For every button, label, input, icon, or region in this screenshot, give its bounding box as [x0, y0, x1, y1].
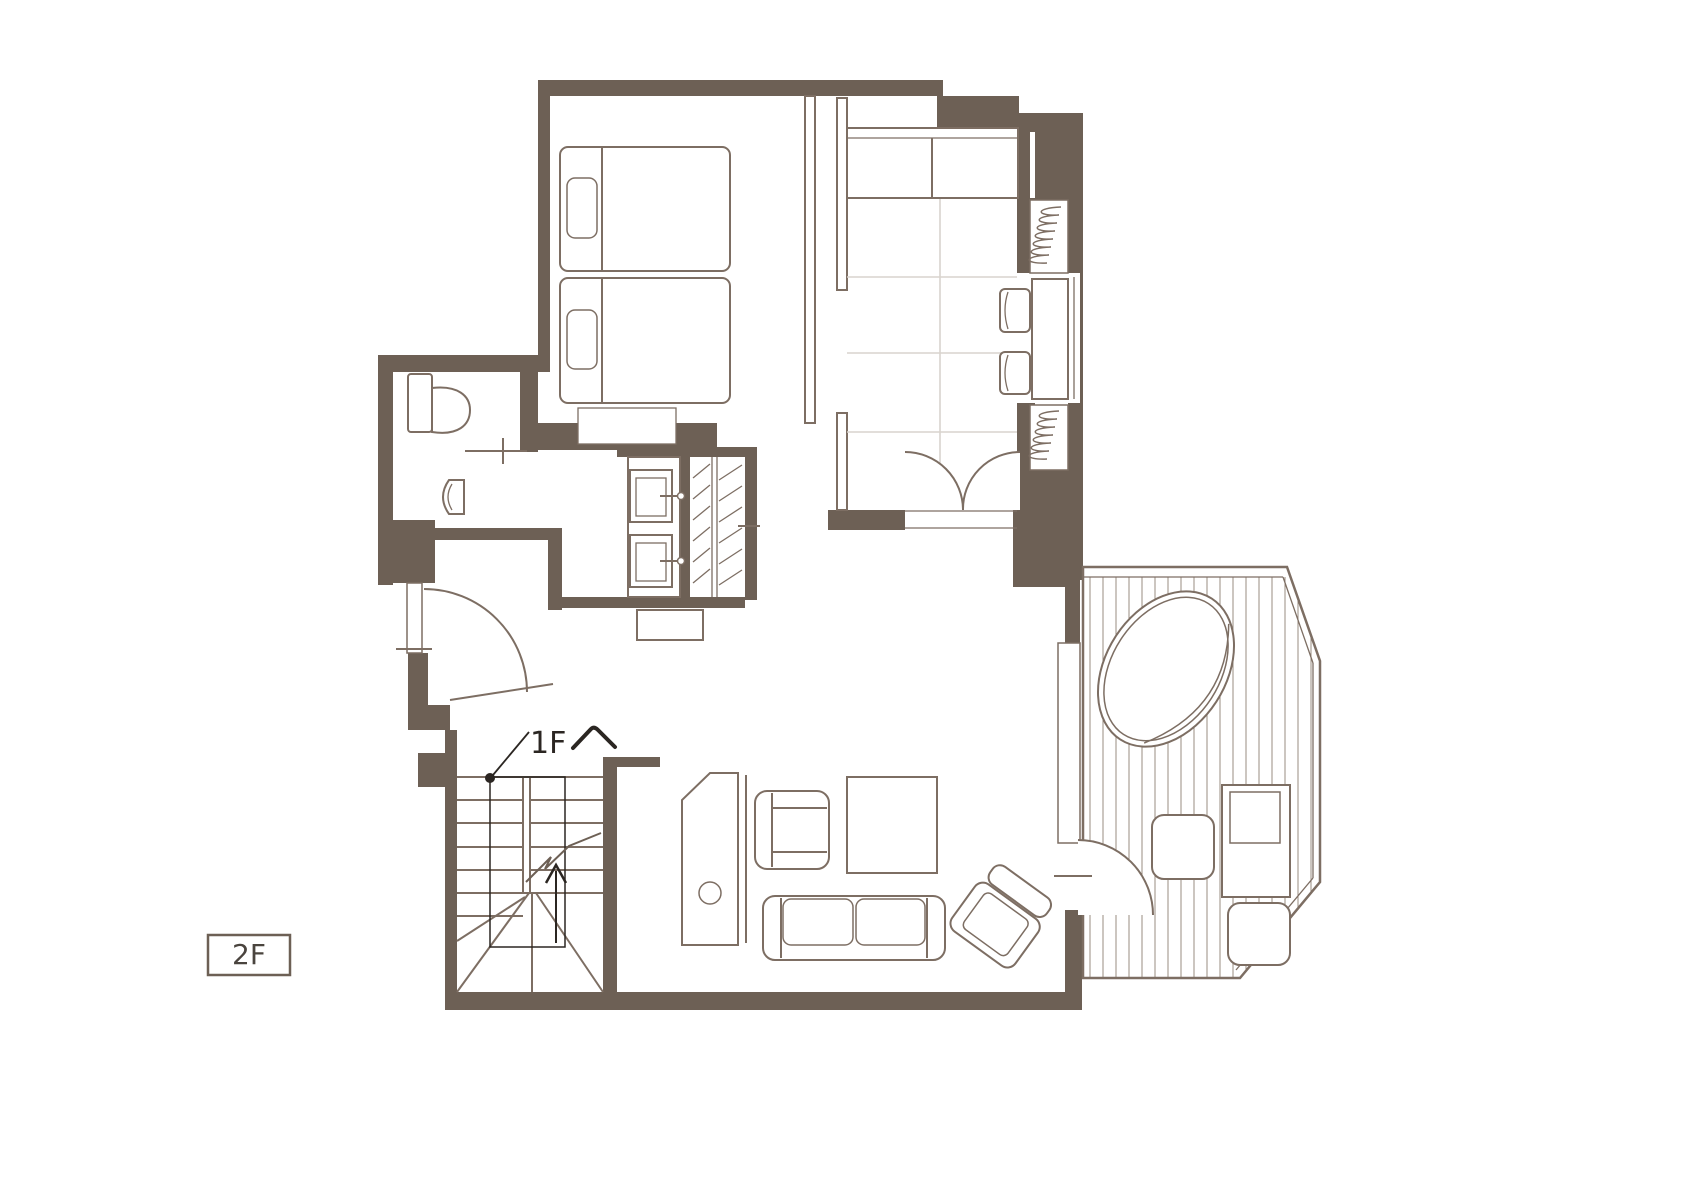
- deck-window-wall: [1058, 643, 1080, 843]
- deck: [1054, 566, 1320, 978]
- faucet-icon: [678, 558, 685, 565]
- entry-door-swing: [424, 589, 527, 692]
- vanity-area: [628, 457, 760, 640]
- bed-2: [560, 278, 730, 403]
- tv-board: [682, 773, 746, 945]
- faucet-icon: [678, 493, 685, 500]
- nook-side-table: [1032, 279, 1068, 399]
- tatami-partition-lower: [837, 413, 847, 510]
- lounge-chair: [947, 859, 1058, 971]
- break-line: [526, 833, 601, 882]
- bedroom-alcove: [578, 408, 676, 444]
- toilet-room: [408, 374, 527, 464]
- kana-he-glyph: [573, 728, 615, 748]
- coffee-table: [847, 777, 937, 873]
- partitions: [805, 96, 847, 510]
- floor-plan-drawing: 1F: [0, 0, 1684, 1192]
- bedroom: [560, 147, 730, 403]
- floor-plan-page: 1F: [0, 0, 1684, 1192]
- toilet-door: [465, 438, 527, 464]
- entry-door-leaf: [407, 583, 422, 653]
- washroom: [443, 480, 464, 514]
- armchair: [755, 791, 829, 869]
- double-door: [905, 452, 1020, 528]
- deck-stool-1: [1152, 815, 1214, 879]
- staircase: 1F: [457, 726, 615, 992]
- bed-1: [560, 147, 730, 271]
- stair-railing: [490, 777, 565, 947]
- living-room: [682, 643, 1080, 971]
- deck-door: [1054, 840, 1153, 915]
- luggage-bench: [637, 610, 703, 640]
- stair-treads: [457, 777, 603, 992]
- washbasin: [443, 480, 464, 514]
- closet: [847, 128, 1018, 198]
- pillow-icon: [567, 178, 597, 238]
- tatami-partition-upper: [837, 98, 847, 290]
- floor-badge-text: 2F: [232, 938, 266, 971]
- stairs-label-text: 1F: [530, 726, 566, 761]
- leader-dot: [485, 773, 495, 783]
- deck-table: [1222, 785, 1290, 897]
- leader-line: [493, 732, 529, 775]
- sofa: [763, 896, 945, 960]
- bedroom-partition: [805, 96, 815, 423]
- toilet: [408, 374, 470, 433]
- tatami-chair-2: [1000, 352, 1030, 394]
- floor-badge: 2F: [208, 935, 290, 975]
- deck-stool-2: [1228, 903, 1290, 965]
- pillow-icon: [567, 310, 597, 369]
- entry-angled-wall: [450, 684, 553, 700]
- tatami-chair-1: [1000, 289, 1030, 332]
- stairs-label: 1F: [530, 726, 615, 761]
